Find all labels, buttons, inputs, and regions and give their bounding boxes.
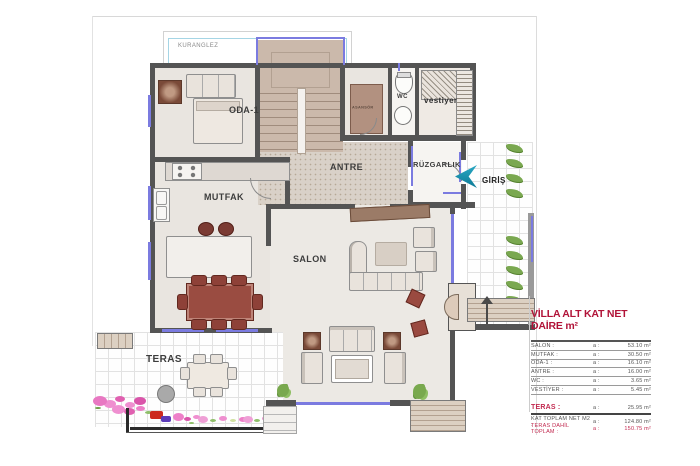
- flower-cluster: [112, 405, 125, 414]
- dining-chair: [191, 319, 207, 330]
- walkway-steps: [467, 298, 535, 322]
- row-value: 16.00 m²: [611, 369, 651, 375]
- total-full-label: TERAS DAHİL TOPLAM :: [531, 423, 593, 435]
- flower-purple-item: [161, 416, 171, 422]
- site-boundary-top: [92, 16, 536, 17]
- dining-chair: [252, 294, 263, 310]
- wall-ruzgarlik-right-a: [461, 141, 466, 160]
- legend-title: VİLLA ALT KAT NET DAİRE m²: [531, 308, 651, 332]
- wc-label: WC: [397, 94, 408, 100]
- wc-toilet-tank: [397, 72, 411, 78]
- oda1-label: ODA-1: [229, 105, 259, 115]
- ruzgarlik-label: RÜZGARLIK: [413, 160, 461, 169]
- total-net-prefix: a :: [593, 419, 611, 425]
- window-stair-left: [256, 37, 258, 65]
- teras-chair: [227, 367, 237, 380]
- teras-label: TERAS: [146, 354, 182, 365]
- row-prefix: a :: [593, 369, 611, 375]
- dining-chair: [211, 275, 227, 286]
- flower-row: [243, 416, 253, 423]
- teras-edge-line-2: [126, 432, 286, 433]
- island-stool-1: [198, 222, 214, 236]
- legend-divider-line: [529, 296, 530, 412]
- teras-row-label: TERAS :: [531, 404, 593, 411]
- row-label: VESTİYER :: [531, 387, 593, 393]
- dining-chair: [191, 275, 207, 286]
- lower-garden-steps: [410, 400, 466, 432]
- dining-chair: [231, 275, 247, 286]
- row-prefix: a :: [593, 387, 611, 393]
- stair-rail: [297, 88, 306, 154]
- kitchen-stove: [172, 163, 202, 180]
- row-label: ODA-1 :: [531, 360, 593, 366]
- row-value: 16.10 m²: [611, 360, 651, 366]
- window-salon-right: [451, 214, 454, 284]
- row-label: MUTFAK :: [531, 352, 593, 358]
- legend-table-row: ODA-1 : a : 16.10 m²: [531, 360, 651, 369]
- window-stair-right: [343, 37, 345, 65]
- window-walkway-rail: [531, 216, 533, 262]
- teras-edge-left: [126, 408, 129, 432]
- wc-sink: [394, 106, 412, 125]
- wall-salon-right-a: [450, 202, 455, 214]
- teras-steps: [97, 333, 133, 349]
- row-value: 53.10 m²: [611, 343, 651, 349]
- legend-table-row: WC : a : 3.65 m²: [531, 377, 651, 386]
- dining-chair: [211, 319, 227, 330]
- vestiyer-label: vestiyer: [424, 96, 457, 105]
- legend-table-row: MUTFAK : a : 30.50 m²: [531, 351, 651, 360]
- teras-planter-circle: [157, 385, 175, 403]
- garden-step-platform: [263, 406, 297, 434]
- row-prefix: a :: [593, 378, 611, 384]
- site-boundary-left: [92, 16, 93, 346]
- teras-chair: [210, 387, 223, 397]
- giris-label: GİRİŞ: [482, 176, 506, 185]
- arrow-up-icon: [486, 302, 488, 324]
- legend-table-row: SALON : a : 53.10 m²: [531, 342, 651, 351]
- legend-table: SALON : a : 53.10 m² MUTFAK : a : 30.50 …: [531, 340, 651, 395]
- flower-cluster: [93, 396, 107, 406]
- total-net-value: 124.80 m²: [611, 419, 651, 425]
- wall-wc-vestiyer: [415, 63, 419, 135]
- teras-chair: [210, 354, 223, 364]
- wall-dining-salon-stub: [266, 204, 271, 246]
- staircase: [258, 40, 343, 152]
- row-label: SALON :: [531, 343, 593, 349]
- window-stair-top: [256, 37, 345, 39]
- wall-stair-asansor: [340, 63, 345, 141]
- antre-label: ANTRE: [330, 162, 363, 172]
- salon-sofa-bottom: [329, 326, 375, 352]
- salon-armchair-2: [415, 251, 437, 272]
- teras-table: [187, 362, 229, 389]
- teras-edge-line-1: [130, 427, 283, 430]
- row-value: 30.50 m²: [611, 352, 651, 358]
- salon-rug: [375, 242, 407, 266]
- legend-table-row: VESTİYER : a : 5.45 m²: [531, 386, 651, 395]
- teras-chair: [180, 367, 190, 380]
- teras-chair: [193, 354, 206, 364]
- sink-basin-2: [156, 206, 167, 220]
- row-label: ANTRE :: [531, 369, 593, 375]
- dining-chair: [177, 294, 188, 310]
- legend-panel: VİLLA ALT KAT NET DAİRE m² SALON : a : 5…: [531, 308, 651, 433]
- oda1-dresser: [158, 80, 182, 104]
- asansor-label: ASANSÖR: [352, 105, 374, 109]
- teras-chair: [193, 387, 206, 397]
- side-table-left: [303, 332, 321, 350]
- row-label: WC :: [531, 378, 593, 384]
- flower-row: [198, 416, 208, 423]
- window-left-oda1: [148, 95, 151, 127]
- window-left-kitchen: [148, 186, 151, 220]
- kitchen-sink: [153, 188, 170, 222]
- legend-teras-row: TERAS : a : 25.95 m²: [531, 403, 651, 415]
- teras-row-value: 25.95 m²: [611, 405, 651, 411]
- total-full-value: 150.75 m²: [611, 426, 651, 432]
- wall-top: [150, 63, 475, 68]
- dining-chair: [231, 319, 247, 330]
- salon-coffee-table: [331, 355, 373, 383]
- teras-row-prefix: a :: [593, 405, 611, 411]
- island-stool-2: [218, 222, 234, 236]
- kuranglez-label: KURANGLEZ: [178, 43, 218, 49]
- salon-label: SALON: [293, 254, 327, 264]
- vestiyer-curved-stair: [456, 70, 473, 136]
- side-table-right: [383, 332, 401, 350]
- salon-armchair-bottom-right: [384, 352, 406, 384]
- salon-armchair-bottom-left: [301, 352, 323, 384]
- row-prefix: a :: [593, 352, 611, 358]
- kitchen-island: [166, 236, 252, 278]
- legend-table-row: ANTRE : a : 16.00 m²: [531, 368, 651, 377]
- mutfak-label: MUTFAK: [204, 192, 244, 202]
- row-value: 5.45 m²: [611, 387, 651, 393]
- wc-toilet: [395, 72, 413, 94]
- arrow-up-head: [481, 296, 493, 304]
- sink-basin-1: [156, 191, 167, 205]
- floor-plan-canvas: KURANGLEZ ODA-1 MUTFAK ANTRE RÜZGARLIK G…: [0, 0, 700, 466]
- window-left-dining: [148, 242, 151, 280]
- stair-landing-line: [271, 52, 330, 88]
- flower-cluster: [173, 413, 184, 421]
- row-value: 3.65 m²: [611, 378, 651, 384]
- row-prefix: a :: [593, 360, 611, 366]
- window-ruzgarlik-h: [443, 192, 461, 194]
- row-prefix: a :: [593, 343, 611, 349]
- window-salon-bottom: [296, 402, 390, 405]
- legend-total-full-row: TERAS DAHİL TOPLAM : a : 150.75 m²: [531, 426, 651, 434]
- total-full-prefix: a :: [593, 426, 611, 432]
- wall-antre-salon-a: [268, 204, 355, 209]
- oda1-sofa: [186, 74, 236, 98]
- wall-asansor-wc: [388, 63, 392, 135]
- salon-armchair-1: [413, 227, 435, 248]
- window-top-wc: [398, 63, 400, 71]
- dining-table: [186, 283, 254, 321]
